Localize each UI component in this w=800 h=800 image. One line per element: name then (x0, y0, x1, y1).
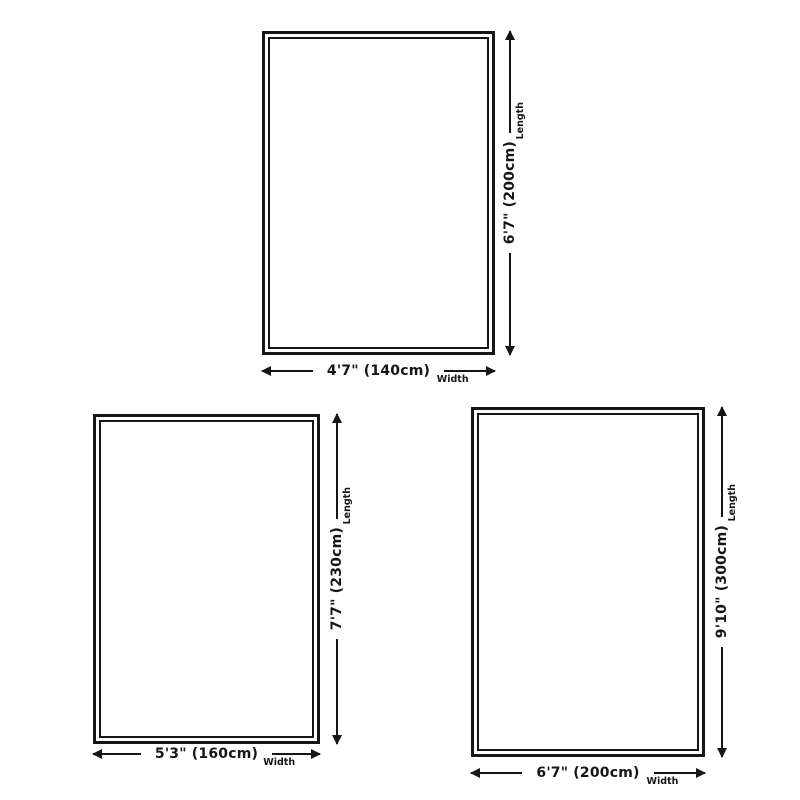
rug-outline (262, 31, 495, 355)
length-axis-label: Length (342, 487, 353, 524)
rug-inner-border (477, 413, 699, 751)
width-axis-label: Width (263, 757, 295, 768)
rug-figure-2: 7'7" (230cm) Length 5'3" (160cm) Width (93, 414, 320, 744)
down-arrow-icon (509, 253, 511, 355)
length-value: 9'10" (300cm) (714, 525, 730, 638)
left-arrow-icon (471, 772, 522, 774)
width-value: 4'7" (140cm) (327, 363, 430, 379)
left-arrow-icon (93, 753, 141, 755)
rug-inner-border (268, 37, 489, 349)
rug-outline (471, 407, 705, 757)
width-axis-label: Width (437, 374, 469, 385)
right-arrow-icon (272, 753, 320, 755)
up-arrow-icon (509, 31, 511, 133)
down-arrow-icon (336, 639, 338, 744)
length-value: 7'7" (230cm) (329, 527, 345, 630)
length-dimension: 6'7" (200cm) Length (502, 31, 518, 355)
right-arrow-icon (654, 772, 705, 774)
rug-figure-3: 9'10" (300cm) Length 6'7" (200cm) Width (471, 407, 705, 757)
rug-figure-1: 6'7" (200cm) Length 4'7" (140cm) Width (262, 31, 495, 355)
width-dimension: 4'7" (140cm) Width (262, 361, 495, 381)
length-value: 6'7" (200cm) (502, 141, 518, 244)
length-axis-label: Length (515, 102, 526, 139)
width-dimension: 6'7" (200cm) Width (471, 763, 705, 783)
up-arrow-icon (721, 407, 723, 517)
right-arrow-icon (444, 370, 495, 372)
width-value: 5'3" (160cm) (155, 746, 258, 762)
length-axis-label: Length (727, 484, 738, 521)
left-arrow-icon (262, 370, 313, 372)
up-arrow-icon (336, 414, 338, 519)
length-dimension: 9'10" (300cm) Length (714, 407, 730, 757)
length-dimension: 7'7" (230cm) Length (329, 414, 345, 744)
width-dimension: 5'3" (160cm) Width (93, 744, 320, 764)
down-arrow-icon (721, 647, 723, 757)
rug-outline (93, 414, 320, 744)
width-axis-label: Width (647, 776, 679, 787)
rug-inner-border (99, 420, 314, 738)
width-value: 6'7" (200cm) (536, 765, 639, 781)
